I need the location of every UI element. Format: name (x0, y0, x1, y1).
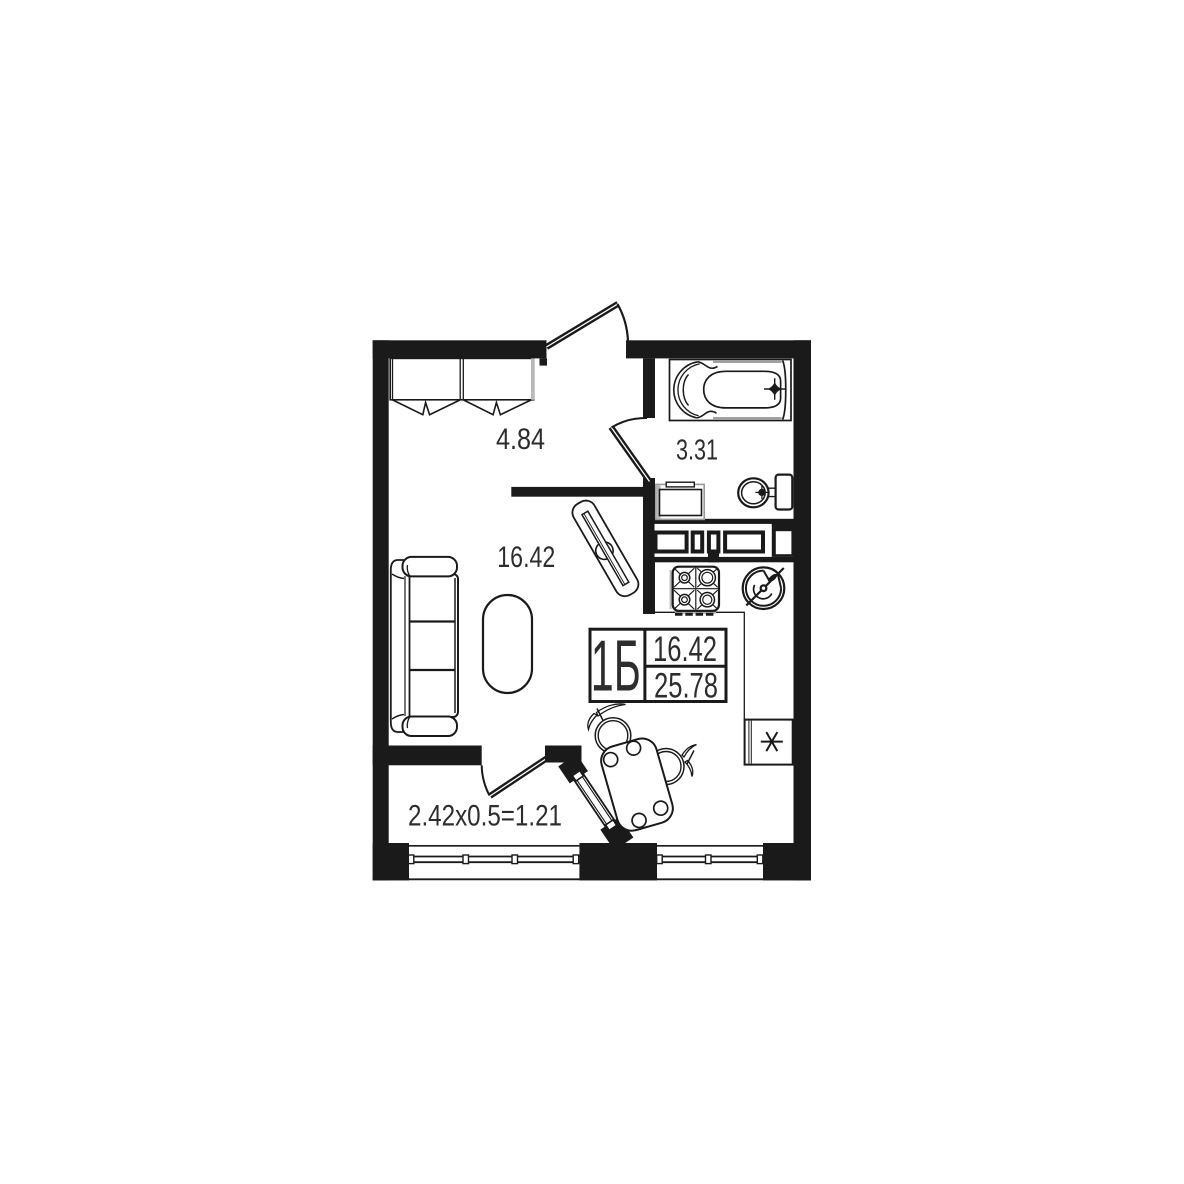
svg-text:16.42: 16.42 (653, 630, 717, 669)
svg-text:2.42x0.5=1.21: 2.42x0.5=1.21 (408, 800, 562, 833)
svg-text:16.42: 16.42 (497, 541, 555, 574)
svg-text:25.78: 25.78 (654, 667, 718, 706)
svg-text:3.31: 3.31 (676, 435, 718, 467)
svg-text:4.84: 4.84 (496, 423, 545, 456)
svg-text:1Б: 1Б (591, 627, 641, 707)
